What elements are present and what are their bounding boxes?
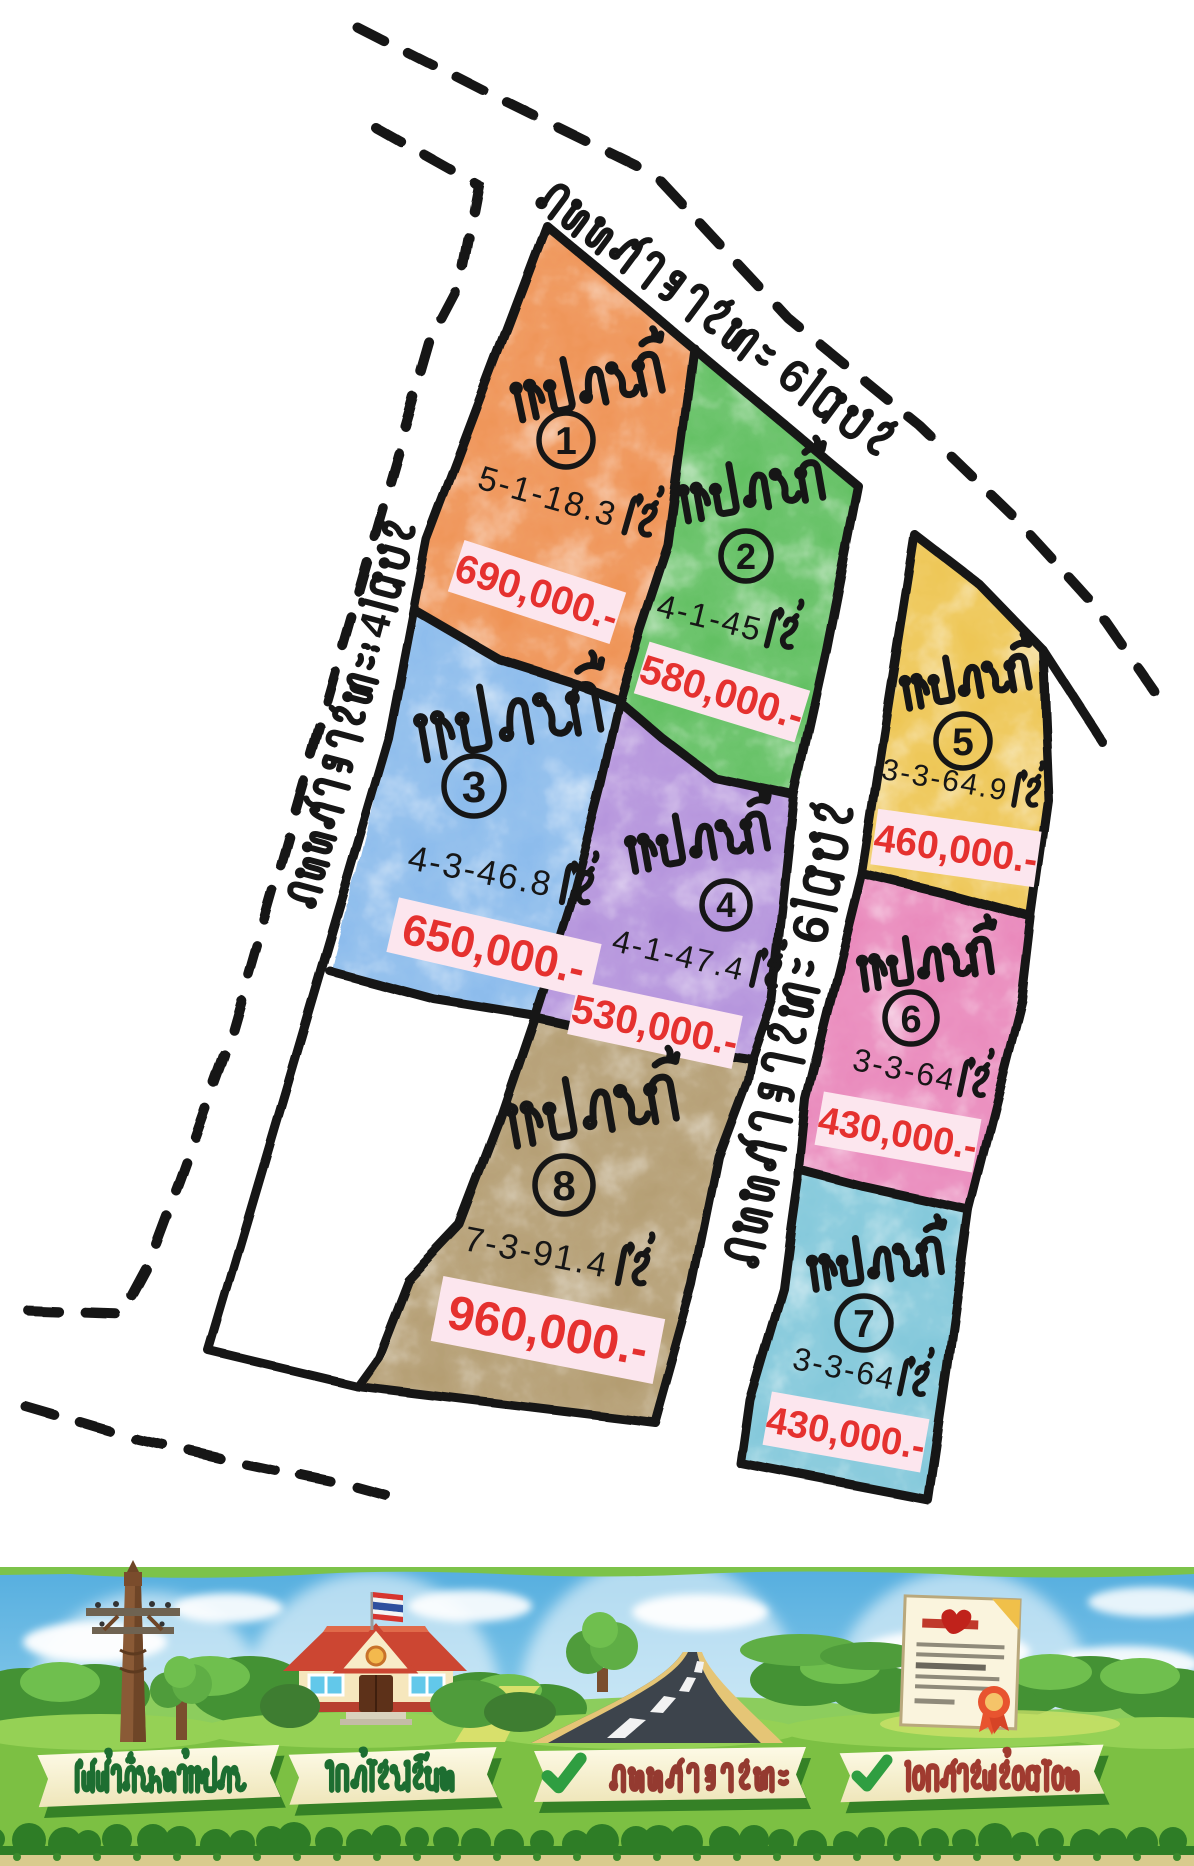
svg-text:7: 7 [853,1303,875,1346]
svg-text:8: 8 [552,1162,575,1209]
svg-text:1: 1 [555,420,577,463]
svg-text:6: 6 [900,999,921,1041]
svg-text:2: 2 [736,536,756,577]
svg-text:3: 3 [462,763,486,812]
svg-text:5: 5 [952,721,974,764]
svg-text:4: 4 [716,886,736,925]
